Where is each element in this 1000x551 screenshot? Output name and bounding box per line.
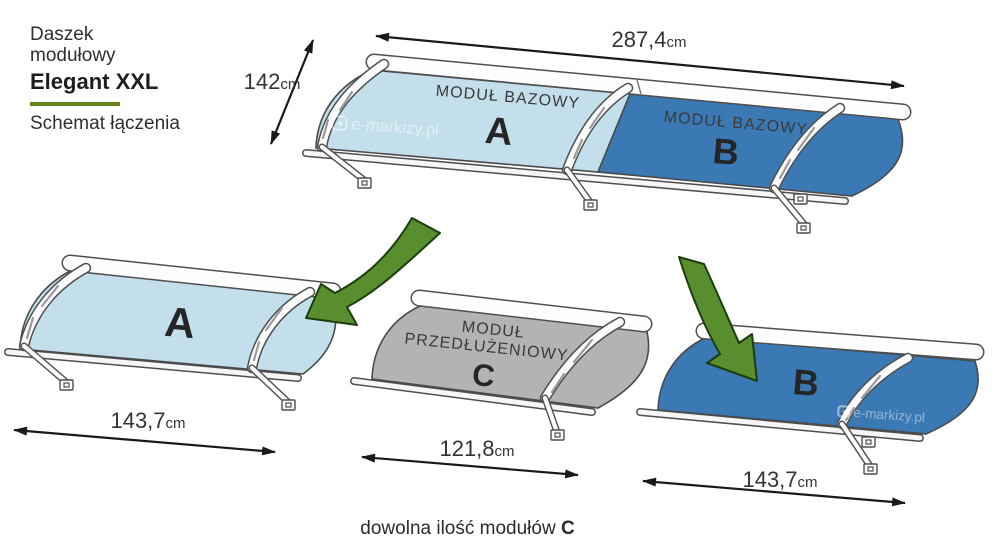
svg-text:142cm: 142cm (244, 69, 301, 94)
module-a-canopy: A (8, 263, 336, 410)
svg-text:143,7cm: 143,7cm (110, 408, 185, 433)
module-b-canopy: B e-markizy.pl (640, 331, 978, 474)
diagram-canvas: Daszek modułowy Elegant XXL Schemat łącz… (0, 0, 1000, 551)
caption-bold-letter: C (561, 518, 575, 539)
assembly-module-a-letter: A (483, 110, 514, 154)
caption: dowolna ilość modułów C (300, 518, 635, 540)
caption-text: dowolna ilość modułów (360, 518, 561, 539)
svg-text:143,7cm: 143,7cm (742, 467, 817, 492)
dimension-depth: 142cm (244, 40, 313, 144)
dimension-module-a: 143,7cm (14, 408, 275, 452)
module-c-canopy: MODUŁ PRZEDŁUŻENIOWY C (354, 298, 649, 440)
module-c-letter: C (471, 357, 497, 394)
module-b-letter: B (791, 361, 820, 404)
canopy-diagram: MODUŁ BAZOWY A MODUŁ BAZOWY B e-markizy.… (0, 0, 1000, 551)
dimension-module-c: 121,8cm (362, 436, 578, 475)
svg-text:121,8cm: 121,8cm (439, 436, 514, 461)
assembly-canopy: MODUŁ BAZOWY A MODUŁ BAZOWY B e-markizy.… (306, 62, 903, 233)
svg-text:287,4cm: 287,4cm (611, 27, 686, 52)
module-a-letter: A (163, 298, 197, 347)
assembly-module-b-letter: B (711, 130, 740, 173)
